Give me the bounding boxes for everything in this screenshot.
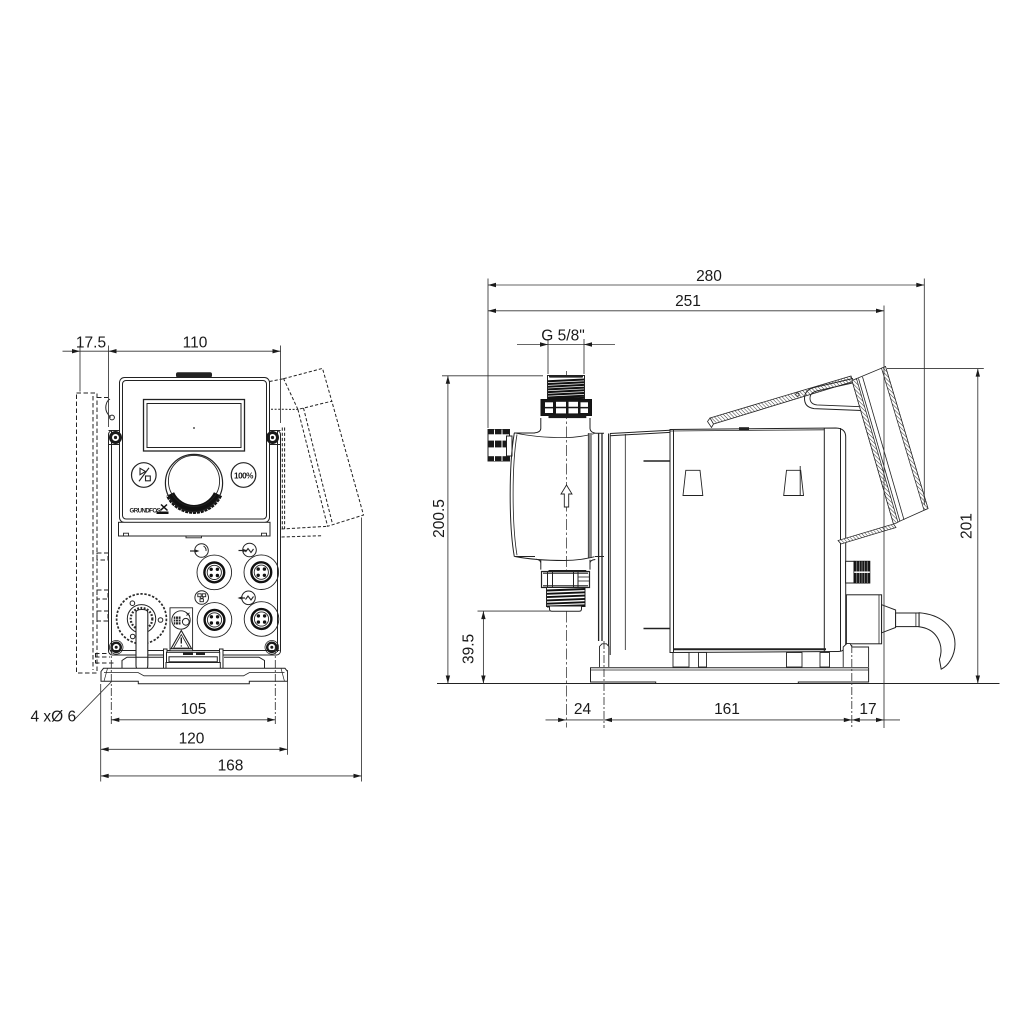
svg-text:GRUNDFOS: GRUNDFOS <box>130 508 161 515</box>
svg-text:39.5: 39.5 <box>461 634 478 664</box>
svg-text:251: 251 <box>675 293 701 310</box>
svg-text:17.5: 17.5 <box>76 335 106 352</box>
svg-text:120: 120 <box>179 731 205 748</box>
svg-text:105: 105 <box>181 701 207 718</box>
svg-text:100%: 100% <box>234 472 254 481</box>
svg-text:4 xØ 6: 4 xØ 6 <box>31 709 77 726</box>
svg-text:201: 201 <box>959 513 976 539</box>
svg-text:G 5/8": G 5/8" <box>541 328 584 345</box>
svg-text:17: 17 <box>859 701 876 718</box>
svg-text:280: 280 <box>696 268 722 285</box>
svg-text:161: 161 <box>714 701 740 718</box>
svg-text:110: 110 <box>183 335 208 352</box>
svg-text:24: 24 <box>574 701 592 718</box>
svg-text:200.5: 200.5 <box>431 499 448 538</box>
svg-text:168: 168 <box>218 758 244 775</box>
